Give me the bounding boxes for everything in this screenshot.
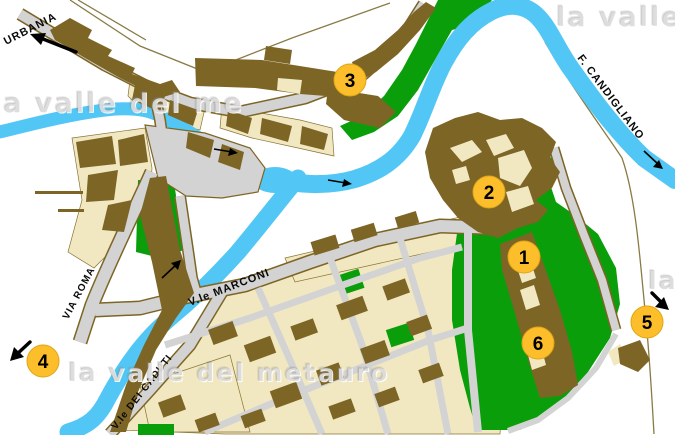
- marker-1[interactable]: 1: [508, 241, 540, 273]
- svg-text:5: 5: [642, 313, 653, 334]
- svg-text:3: 3: [345, 71, 356, 92]
- town-map: URBANIA VIA ROMA V.le MARCONI V.le DEI C…: [0, 0, 675, 435]
- map-canvas: URBANIA VIA ROMA V.le MARCONI V.le DEI C…: [0, 0, 675, 435]
- svg-text:6: 6: [533, 334, 544, 355]
- svg-text:2: 2: [484, 183, 495, 204]
- marker-2[interactable]: 2: [473, 176, 505, 208]
- marker-6[interactable]: 6: [522, 327, 554, 359]
- marker-4[interactable]: 4: [27, 345, 59, 377]
- marker-3[interactable]: 3: [334, 64, 366, 96]
- marker-5[interactable]: 5: [631, 306, 663, 338]
- svg-text:4: 4: [38, 352, 49, 373]
- svg-text:1: 1: [519, 248, 530, 269]
